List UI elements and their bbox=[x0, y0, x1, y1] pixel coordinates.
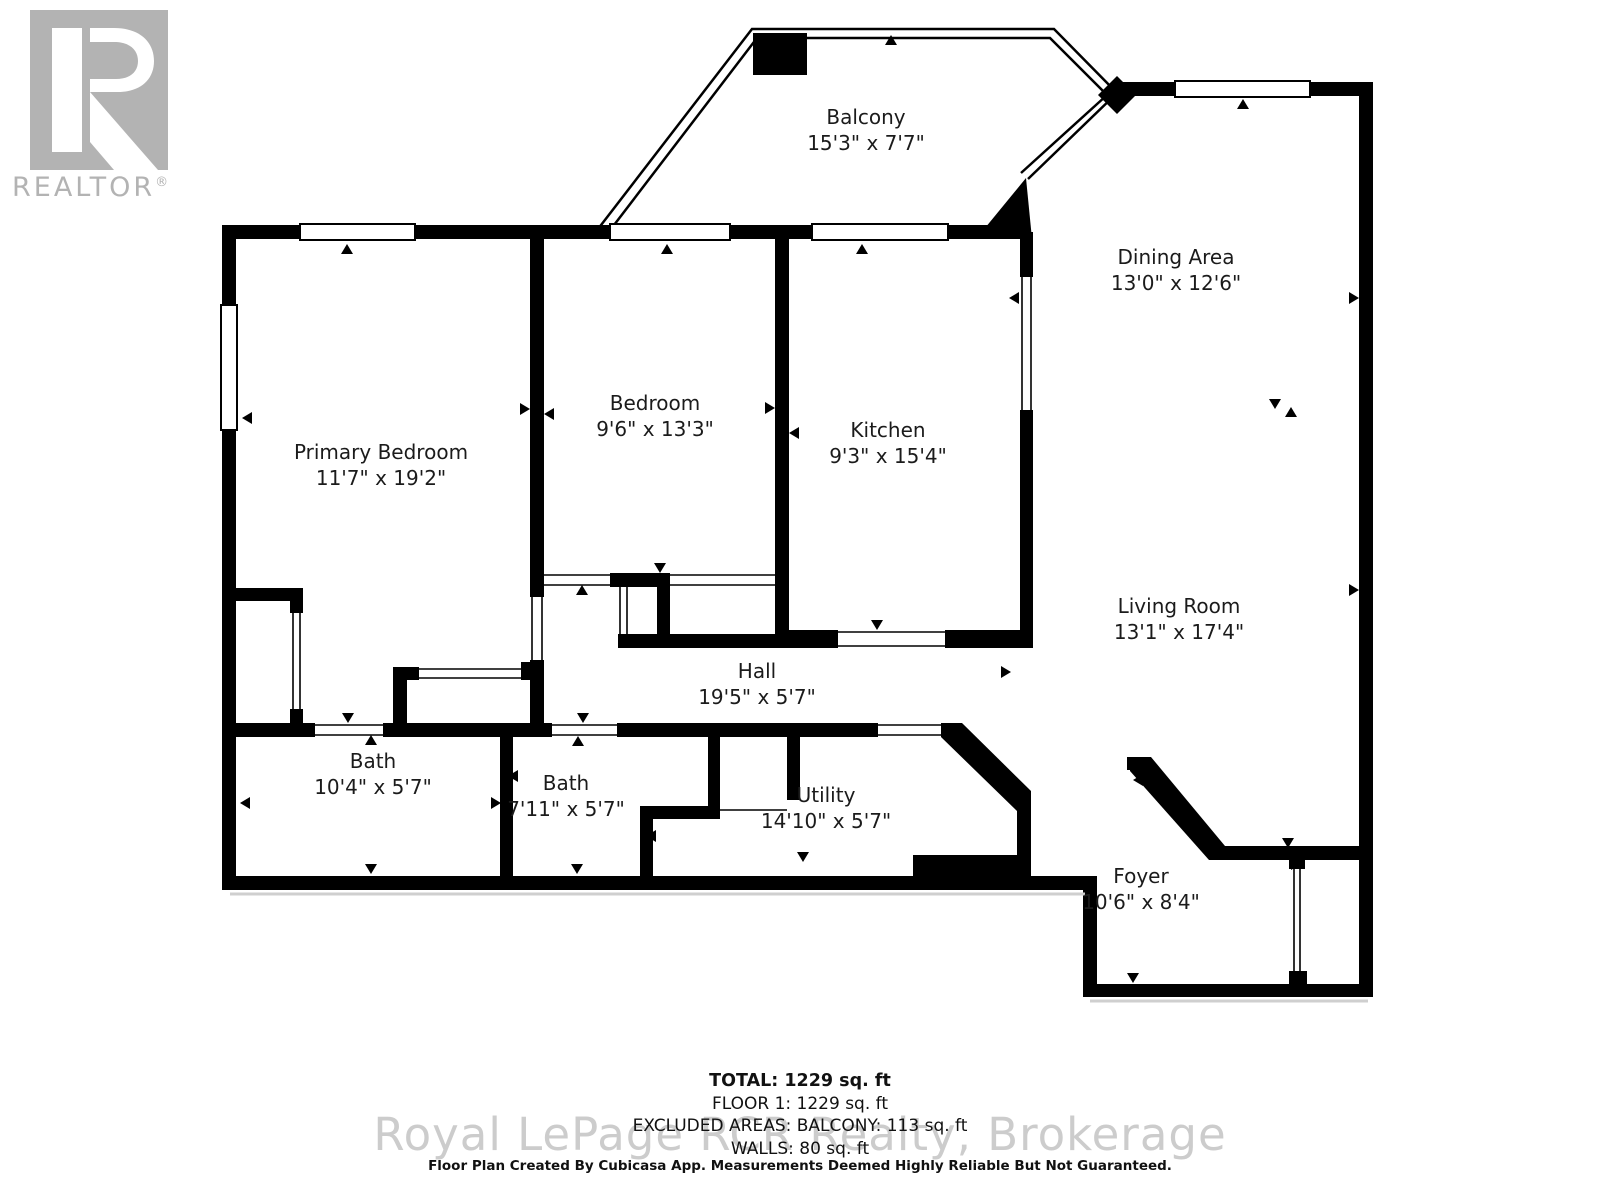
room-label-bath-primary: Bath 10'4" x 5'7" bbox=[314, 748, 432, 800]
room-dims: 10'6" x 8'4" bbox=[1082, 889, 1200, 915]
summary-floor1: FLOOR 1: 1229 sq. ft bbox=[0, 1093, 1600, 1116]
room-name: Hall bbox=[738, 659, 776, 683]
room-dims: 19'5" x 5'7" bbox=[698, 684, 816, 710]
room-dims: 15'3" x 7'7" bbox=[807, 130, 925, 156]
room-name: Living Room bbox=[1118, 594, 1241, 618]
room-label-bedroom: Bedroom 9'6" x 13'3" bbox=[596, 390, 714, 442]
floorplan-page: REALTOR® bbox=[0, 0, 1600, 1200]
room-label-primary-bedroom: Primary Bedroom 11'7" x 19'2" bbox=[294, 439, 468, 491]
room-name: Balcony bbox=[826, 105, 905, 129]
room-name: Kitchen bbox=[850, 418, 925, 442]
disclaimer-text: Floor Plan Created By Cubicasa App. Meas… bbox=[0, 1158, 1600, 1174]
floorplan-drawing bbox=[0, 0, 1600, 1200]
room-dims: 13'1" x 17'4" bbox=[1114, 619, 1244, 645]
room-dims: 14'10" x 5'7" bbox=[761, 808, 891, 834]
room-dims: 13'0" x 12'6" bbox=[1111, 270, 1241, 296]
room-label-utility: Utility 14'10" x 5'7" bbox=[761, 782, 891, 834]
room-label-living-room: Living Room 13'1" x 17'4" bbox=[1114, 593, 1244, 645]
area-summary: TOTAL: 1229 sq. ft FLOOR 1: 1229 sq. ft … bbox=[0, 1070, 1600, 1160]
door-direction-arrows bbox=[240, 35, 1359, 983]
room-dims: 10'4" x 5'7" bbox=[314, 774, 432, 800]
room-name: Bedroom bbox=[610, 391, 700, 415]
room-dims: 7'11" x 5'7" bbox=[507, 796, 625, 822]
room-dims: 9'3" x 15'4" bbox=[829, 443, 947, 469]
room-label-kitchen: Kitchen 9'3" x 15'4" bbox=[829, 417, 947, 469]
room-label-hall: Hall 19'5" x 5'7" bbox=[698, 658, 816, 710]
room-name: Dining Area bbox=[1118, 245, 1235, 269]
summary-excluded: EXCLUDED AREAS: BALCONY: 113 sq. ft bbox=[0, 1115, 1600, 1138]
room-label-dining-area: Dining Area 13'0" x 12'6" bbox=[1111, 244, 1241, 296]
summary-total: TOTAL: 1229 sq. ft bbox=[0, 1070, 1600, 1093]
room-name: Foyer bbox=[1113, 864, 1168, 888]
room-name: Bath bbox=[350, 749, 397, 773]
room-dims: 11'7" x 19'2" bbox=[294, 465, 468, 491]
room-name: Bath bbox=[543, 771, 590, 795]
room-label-bath-hall: Bath 7'11" x 5'7" bbox=[507, 770, 625, 822]
room-name: Utility bbox=[797, 783, 856, 807]
room-name: Primary Bedroom bbox=[294, 440, 468, 464]
room-label-balcony: Balcony 15'3" x 7'7" bbox=[807, 104, 925, 156]
room-label-foyer: Foyer 10'6" x 8'4" bbox=[1082, 863, 1200, 915]
summary-walls: WALLS: 80 sq. ft bbox=[0, 1138, 1600, 1161]
room-dims: 9'6" x 13'3" bbox=[596, 416, 714, 442]
